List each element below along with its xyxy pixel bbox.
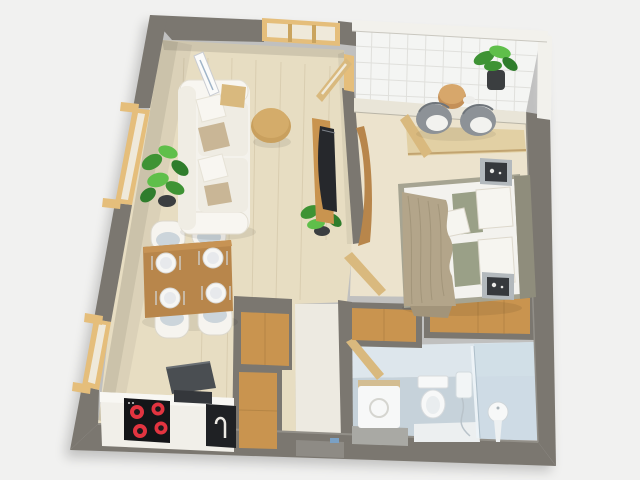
hallway-floor — [295, 304, 346, 438]
cooktop-control-2 — [132, 402, 134, 404]
cooktop — [124, 398, 170, 443]
top-window-mullion-1 — [288, 24, 292, 42]
bed-pillow-white-1 — [476, 187, 513, 229]
balcony-wall-right — [537, 34, 552, 120]
built-in-oven — [206, 404, 236, 448]
shower-platform — [414, 422, 480, 442]
balcony-tray — [463, 96, 475, 104]
pedestal-sink-basin — [488, 402, 508, 422]
sofa-pillow-taupe-2 — [204, 182, 232, 206]
plant-pot-3 — [487, 70, 505, 90]
balcony-table-top — [439, 84, 465, 104]
shower-wall-unit — [456, 372, 472, 398]
toilet-seat — [426, 396, 440, 414]
coffee-table-top — [253, 108, 289, 138]
sink-faucet-dot — [497, 407, 500, 410]
speaker-1 — [485, 162, 507, 182]
washing-machine — [358, 386, 400, 428]
bed — [398, 174, 536, 318]
floorplan-canvas — [0, 0, 640, 480]
top-window-mullion-2 — [312, 25, 316, 43]
toilet-tank — [418, 376, 448, 388]
coffee-table — [251, 108, 291, 148]
speaker-2-cone-b — [501, 286, 504, 289]
kitchen-sink — [174, 390, 212, 404]
armrest-tray — [220, 84, 246, 108]
speaker-2-cone-a — [492, 283, 496, 287]
speaker-2 — [487, 277, 509, 296]
speaker-1-cone-b — [499, 172, 502, 175]
cooktop-control-1 — [128, 402, 130, 404]
bath-mat — [352, 426, 408, 446]
shower-zone — [474, 342, 538, 440]
floor-object-blue — [330, 438, 339, 443]
sofa-backrest — [178, 86, 196, 230]
speaker-1-cone-a — [490, 169, 494, 173]
plant-pot-1 — [158, 195, 176, 207]
